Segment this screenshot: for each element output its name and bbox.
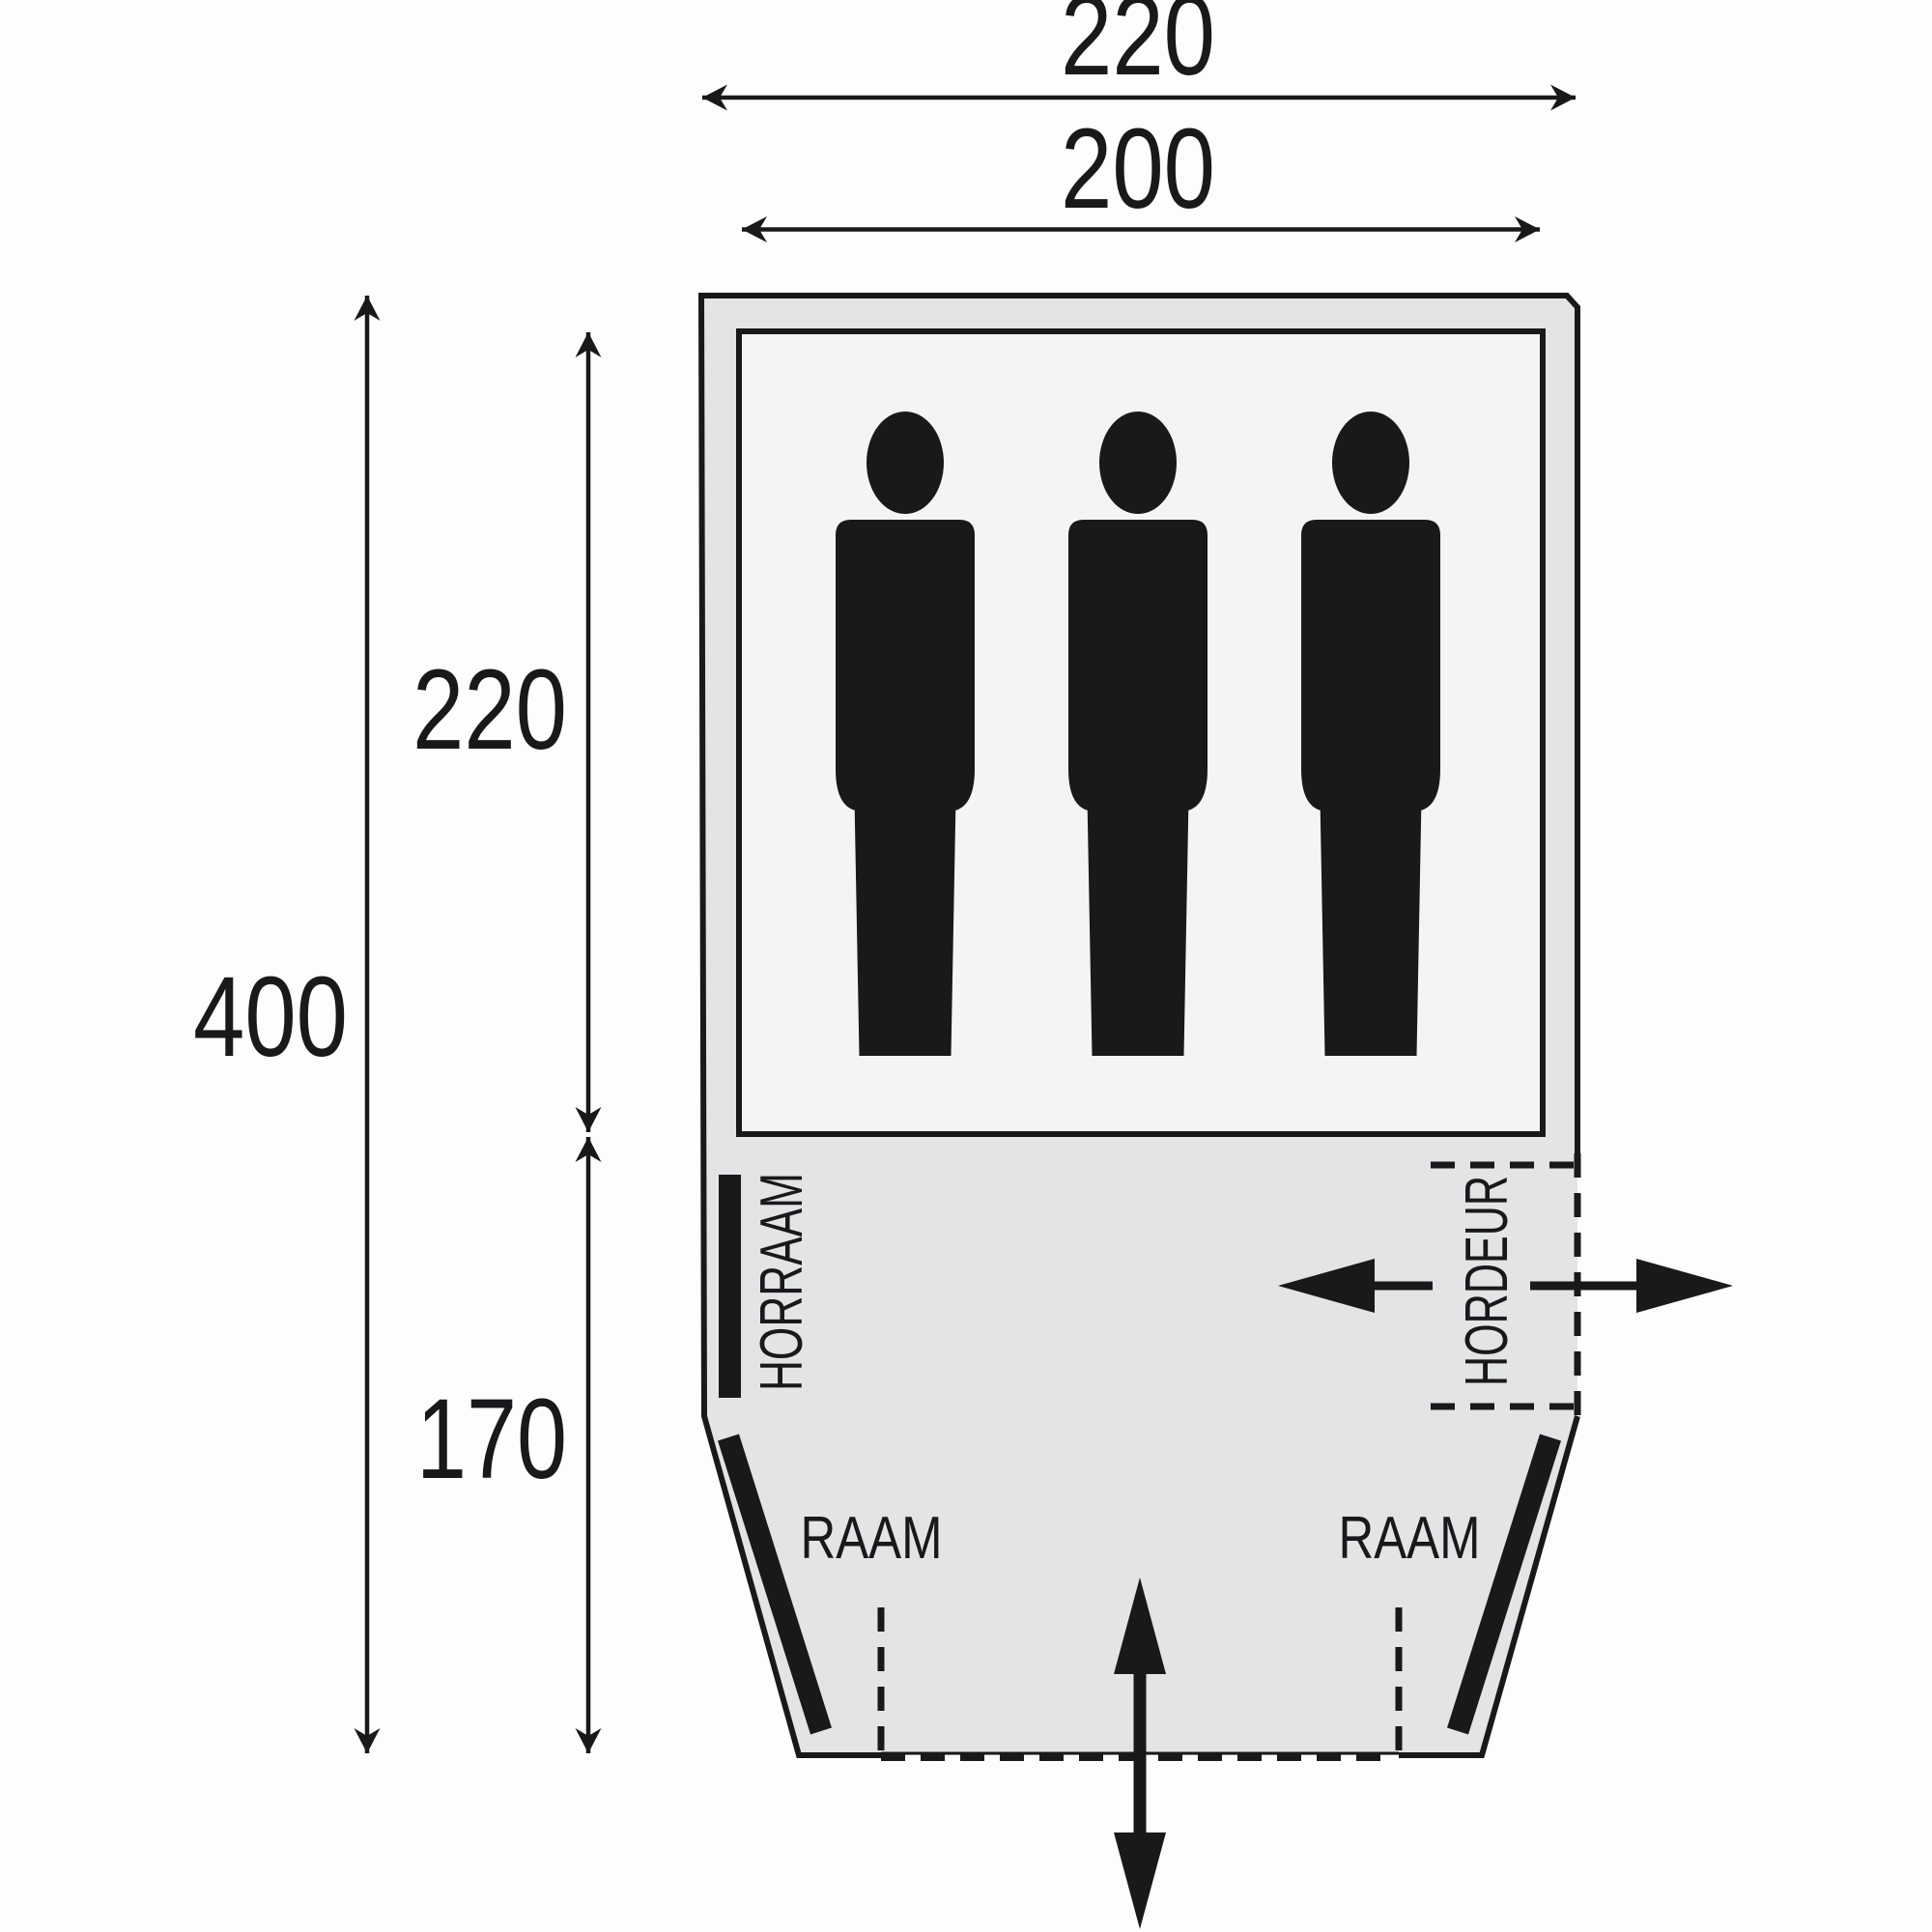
svg-text:RAAM: RAAM (801, 1505, 943, 1572)
svg-text:HORRAAM: HORRAAM (749, 1173, 815, 1391)
svg-text:170: 170 (416, 1376, 567, 1503)
svg-text:400: 400 (193, 953, 348, 1081)
svg-text:220: 220 (1061, 0, 1215, 99)
svg-text:RAAM: RAAM (1339, 1505, 1481, 1572)
svg-text:200: 200 (1061, 105, 1215, 233)
svg-text:HORDEUR: HORDEUR (1454, 1176, 1520, 1386)
svg-text:220: 220 (412, 646, 567, 774)
